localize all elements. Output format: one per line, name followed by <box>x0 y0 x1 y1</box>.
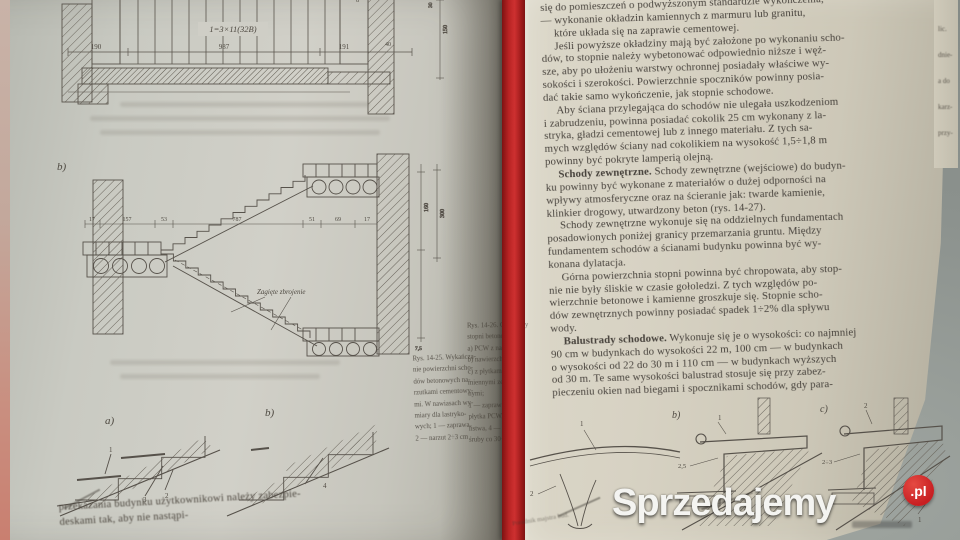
bleed-smudge <box>120 374 320 379</box>
section-note: Zagięte zbrojenie <box>257 288 306 296</box>
dim: 17 <box>364 217 370 223</box>
detail-a-label: a) <box>105 415 115 427</box>
detail2-num25: 2,5 <box>678 463 686 470</box>
dim: 787 <box>233 217 242 223</box>
plan-flight-label: 1=3×11(32B) <box>209 24 256 34</box>
bleed-smudge <box>90 116 390 121</box>
rail-num1: 1 <box>580 420 584 428</box>
figure-stair-plan: 1=3×11(32B) 190 987 191 40 8 150 30 <box>20 0 460 146</box>
plan-dim-4: 40 <box>385 42 391 48</box>
red-ribbon-bookmark <box>502 0 525 540</box>
svg-text:30: 30 <box>428 2 434 8</box>
detail3-num2: 2 <box>864 402 868 410</box>
rail-num2: 2 <box>530 490 534 498</box>
dim: 157 <box>123 217 132 223</box>
book-photo: 1=3×11(32B) 190 987 191 40 8 150 30 <box>0 0 960 540</box>
plan-dim-2: 987 <box>219 43 230 51</box>
note-leaders <box>231 297 291 330</box>
bleed-smudge <box>100 130 380 135</box>
detail-b-label: b) <box>265 407 275 419</box>
dim: 53 <box>161 217 167 223</box>
right-page-body-text: się do pomieszczeń o podwyższonym standa… <box>540 0 948 400</box>
svg-text:7,5: 7,5 <box>415 346 422 352</box>
plan-walls <box>62 0 394 114</box>
plan-dim-small: 8 <box>356 0 359 4</box>
section-walls <box>93 154 409 354</box>
dim: 69 <box>335 217 341 223</box>
bleed-smudge <box>110 360 340 365</box>
detail3-step <box>828 398 950 530</box>
text-line: dnie- <box>938 42 960 68</box>
detail2-label: b) <box>672 410 681 421</box>
text-line: karz- <box>938 94 960 120</box>
dim: 51 <box>309 217 315 223</box>
detail3-num1: 1 <box>918 516 922 524</box>
gutter-shadow <box>440 0 504 540</box>
dim: 17 <box>89 217 95 223</box>
detail3-label: c) <box>820 404 828 415</box>
plan-dim-3: 191 <box>339 43 350 51</box>
next-page-text-fragments: lic.dnie-a dokarz-przy- <box>938 16 960 146</box>
text-line: przy- <box>938 120 960 146</box>
bleed-smudge <box>120 102 370 107</box>
plan-slab <box>68 68 390 104</box>
watermark-pl-badge: .pl <box>903 475 934 506</box>
svg-text:160: 160 <box>424 203 430 212</box>
figure-stair-section: b) <box>25 142 475 356</box>
text-line: lic. <box>938 16 960 42</box>
text-line: a do <box>938 68 960 94</box>
detail3-num23: 2÷3 <box>822 459 832 466</box>
detail-a-num1: 1 <box>109 446 113 454</box>
section-landings <box>83 164 379 356</box>
section-flights <box>161 175 317 346</box>
left-page-edges <box>0 0 10 540</box>
watermark-subtext <box>852 521 912 528</box>
fig-b-label: b) <box>57 161 67 173</box>
plan-dim-1: 190 <box>91 43 102 51</box>
detail2-num1: 1 <box>718 414 722 422</box>
watermark-text: Sprzedajemy <box>612 482 835 525</box>
